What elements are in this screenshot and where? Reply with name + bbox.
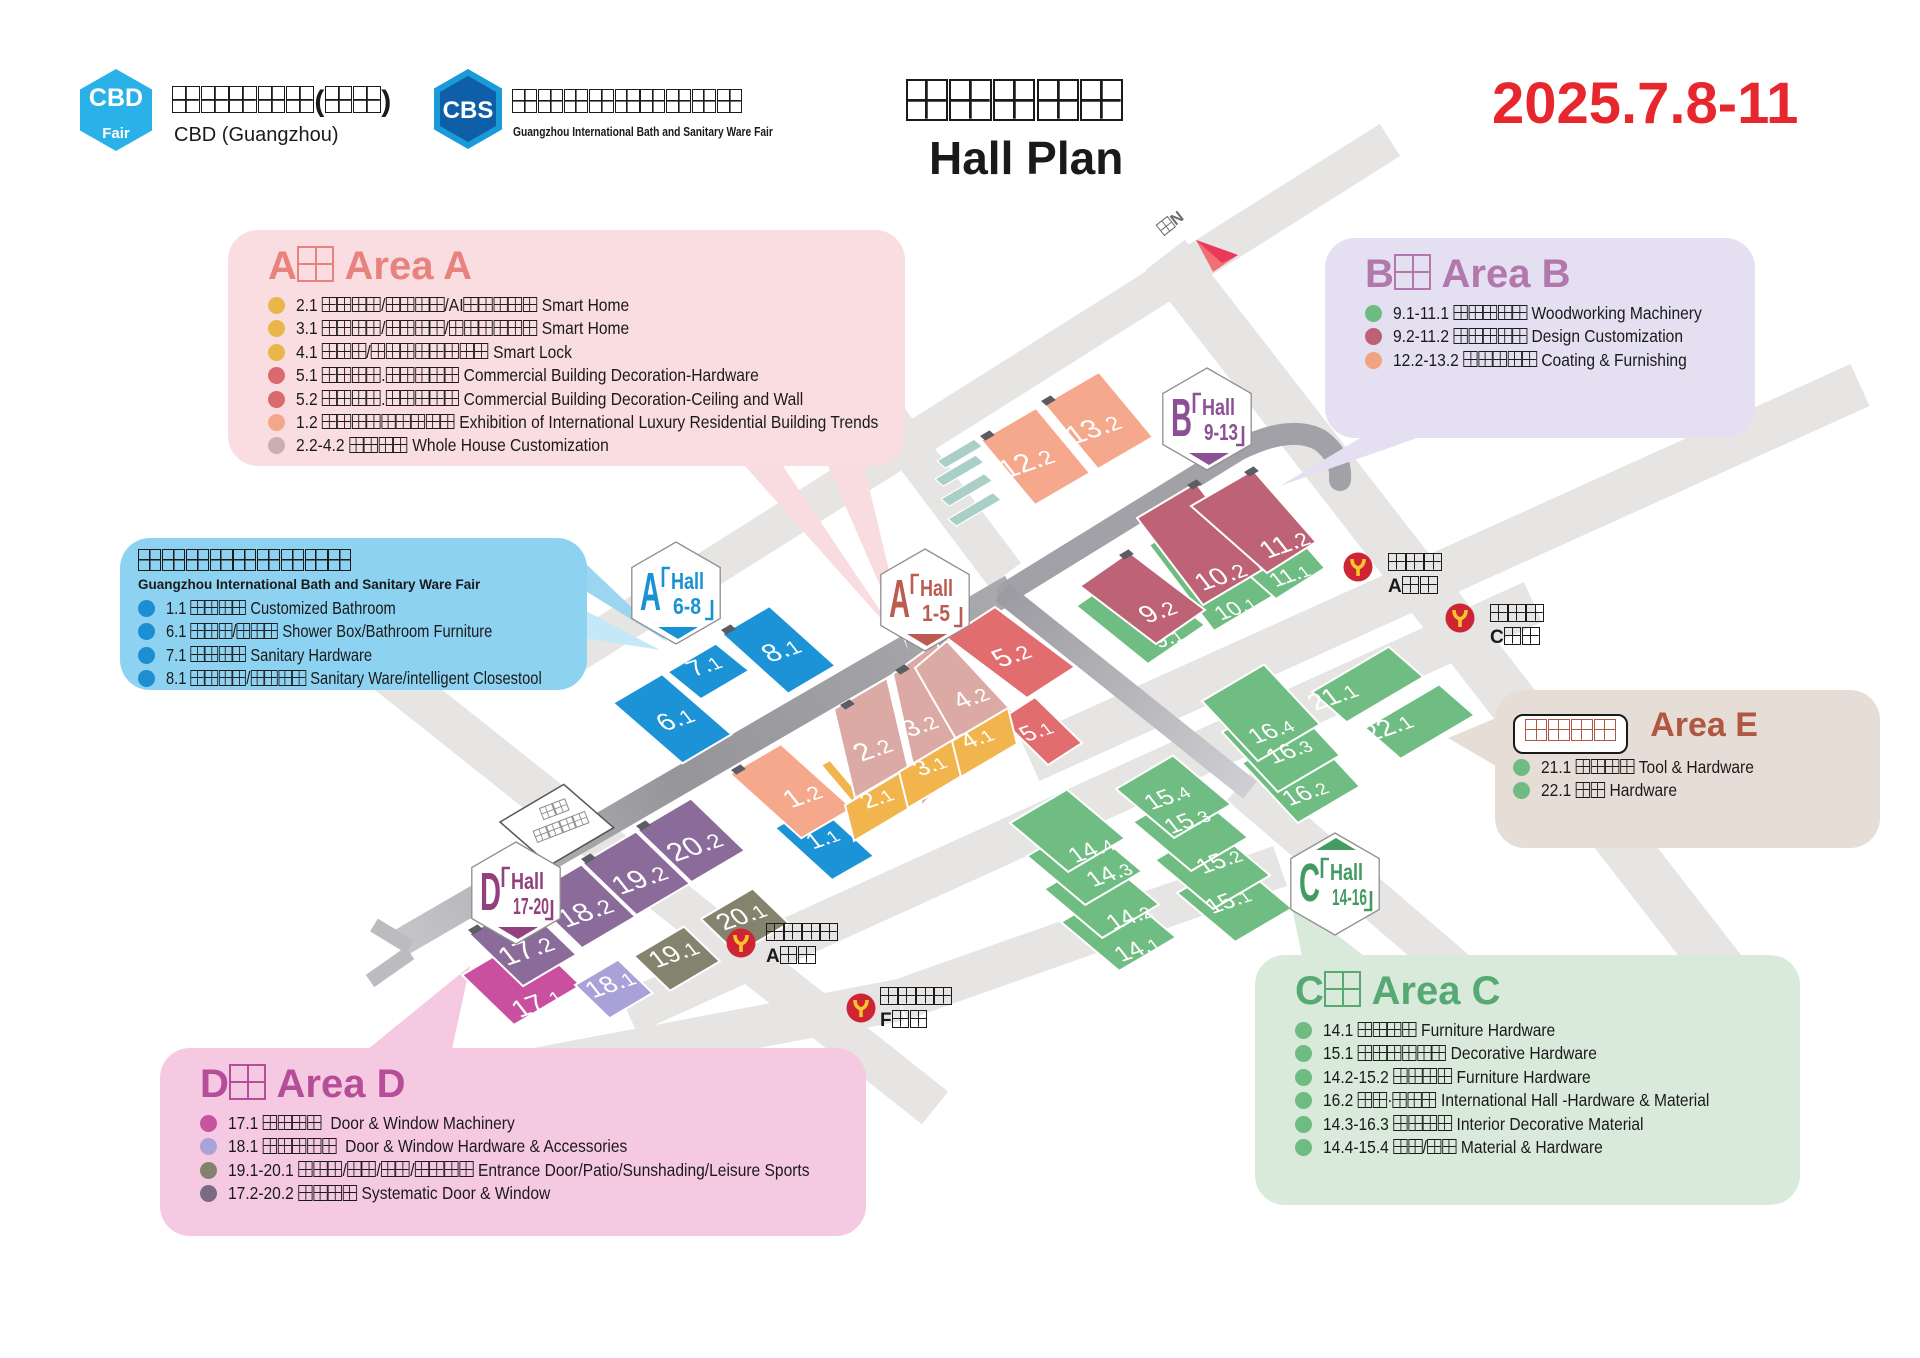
- svg-text:6-8: 6-8: [673, 593, 701, 619]
- svg-text:A: A: [889, 569, 910, 629]
- svg-text:1-5: 1-5: [922, 600, 950, 626]
- svg-text:B: B: [1171, 388, 1192, 448]
- svg-text:Hall: Hall: [1202, 394, 1235, 420]
- svg-text:14-16: 14-16: [1332, 884, 1367, 910]
- svg-text:D: D: [480, 862, 501, 922]
- svg-text:Hall: Hall: [671, 568, 704, 594]
- svg-text:C: C: [1299, 853, 1320, 913]
- svg-text:A: A: [640, 562, 661, 622]
- svg-text:Hall: Hall: [511, 868, 544, 894]
- svg-text:Hall: Hall: [920, 575, 953, 601]
- svg-text:Hall: Hall: [1330, 859, 1363, 885]
- svg-text:9-13: 9-13: [1204, 419, 1238, 445]
- svg-text:17-20: 17-20: [513, 893, 549, 919]
